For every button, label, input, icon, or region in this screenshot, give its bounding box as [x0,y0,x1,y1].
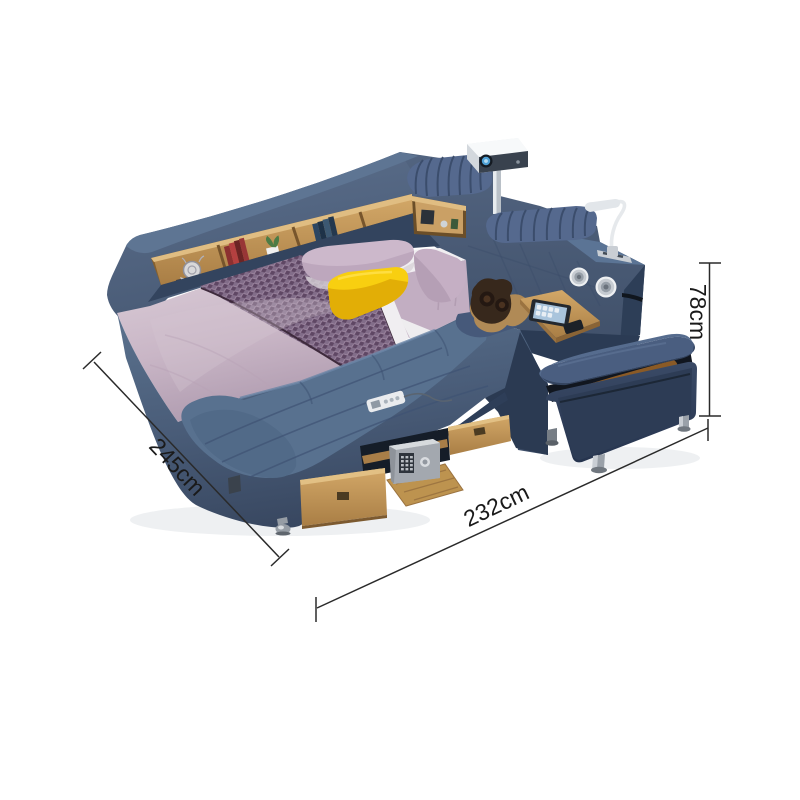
svg-text:78cm: 78cm [685,284,711,340]
